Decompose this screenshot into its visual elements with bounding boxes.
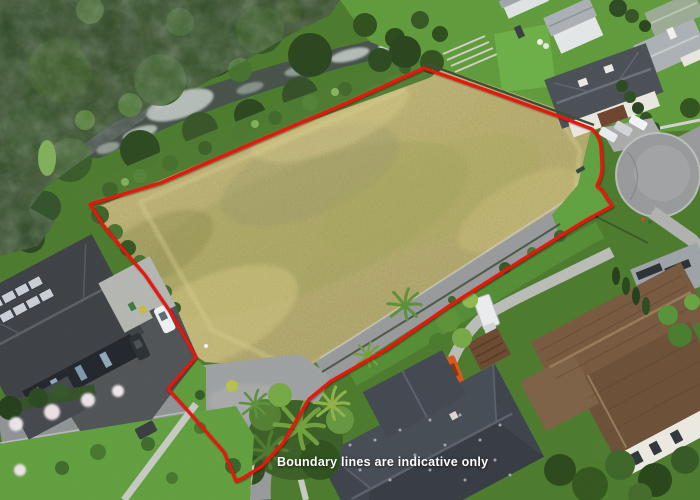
aerial-photo: Boundary lines are indicative only [0,0,700,500]
aerial-photo-canvas [0,0,700,500]
photo-grain [0,0,700,500]
